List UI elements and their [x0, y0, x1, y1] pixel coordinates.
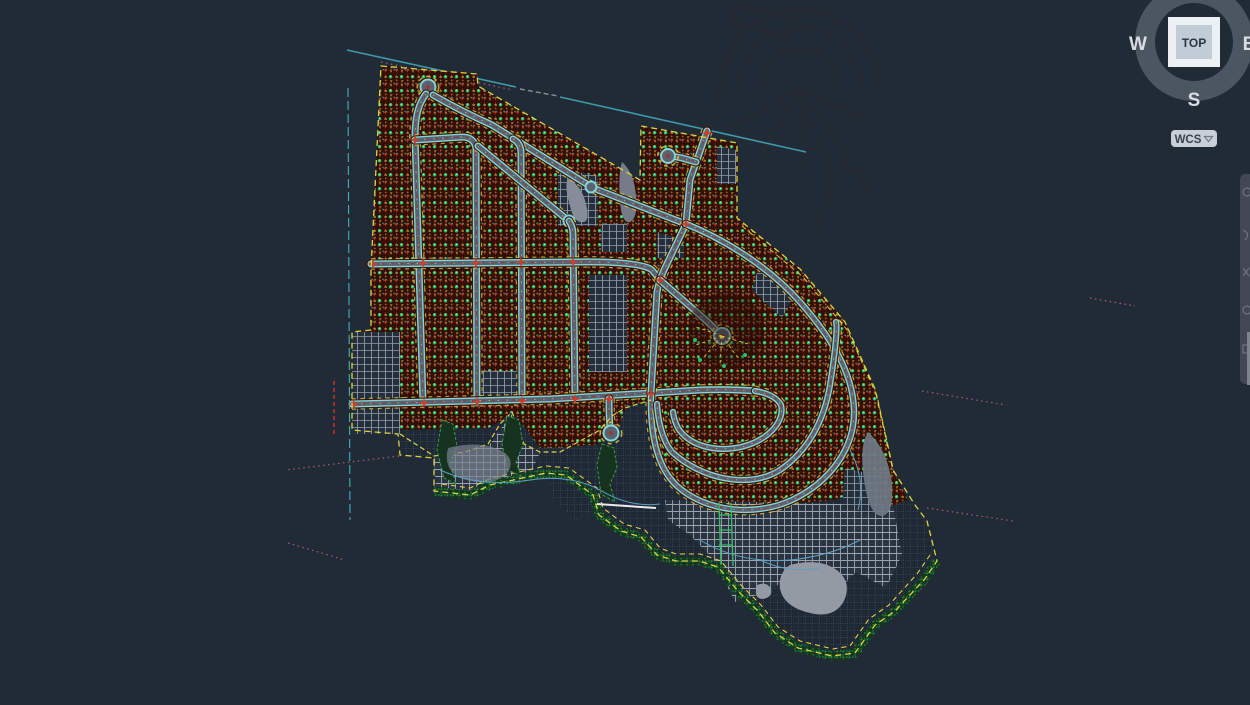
- svg-text:W: W: [1129, 34, 1147, 55]
- svg-text:E: E: [1243, 34, 1250, 55]
- svg-text:S: S: [1188, 90, 1201, 111]
- svg-text:WCS: WCS: [1175, 134, 1202, 146]
- svg-text:TOP: TOP: [1182, 36, 1206, 50]
